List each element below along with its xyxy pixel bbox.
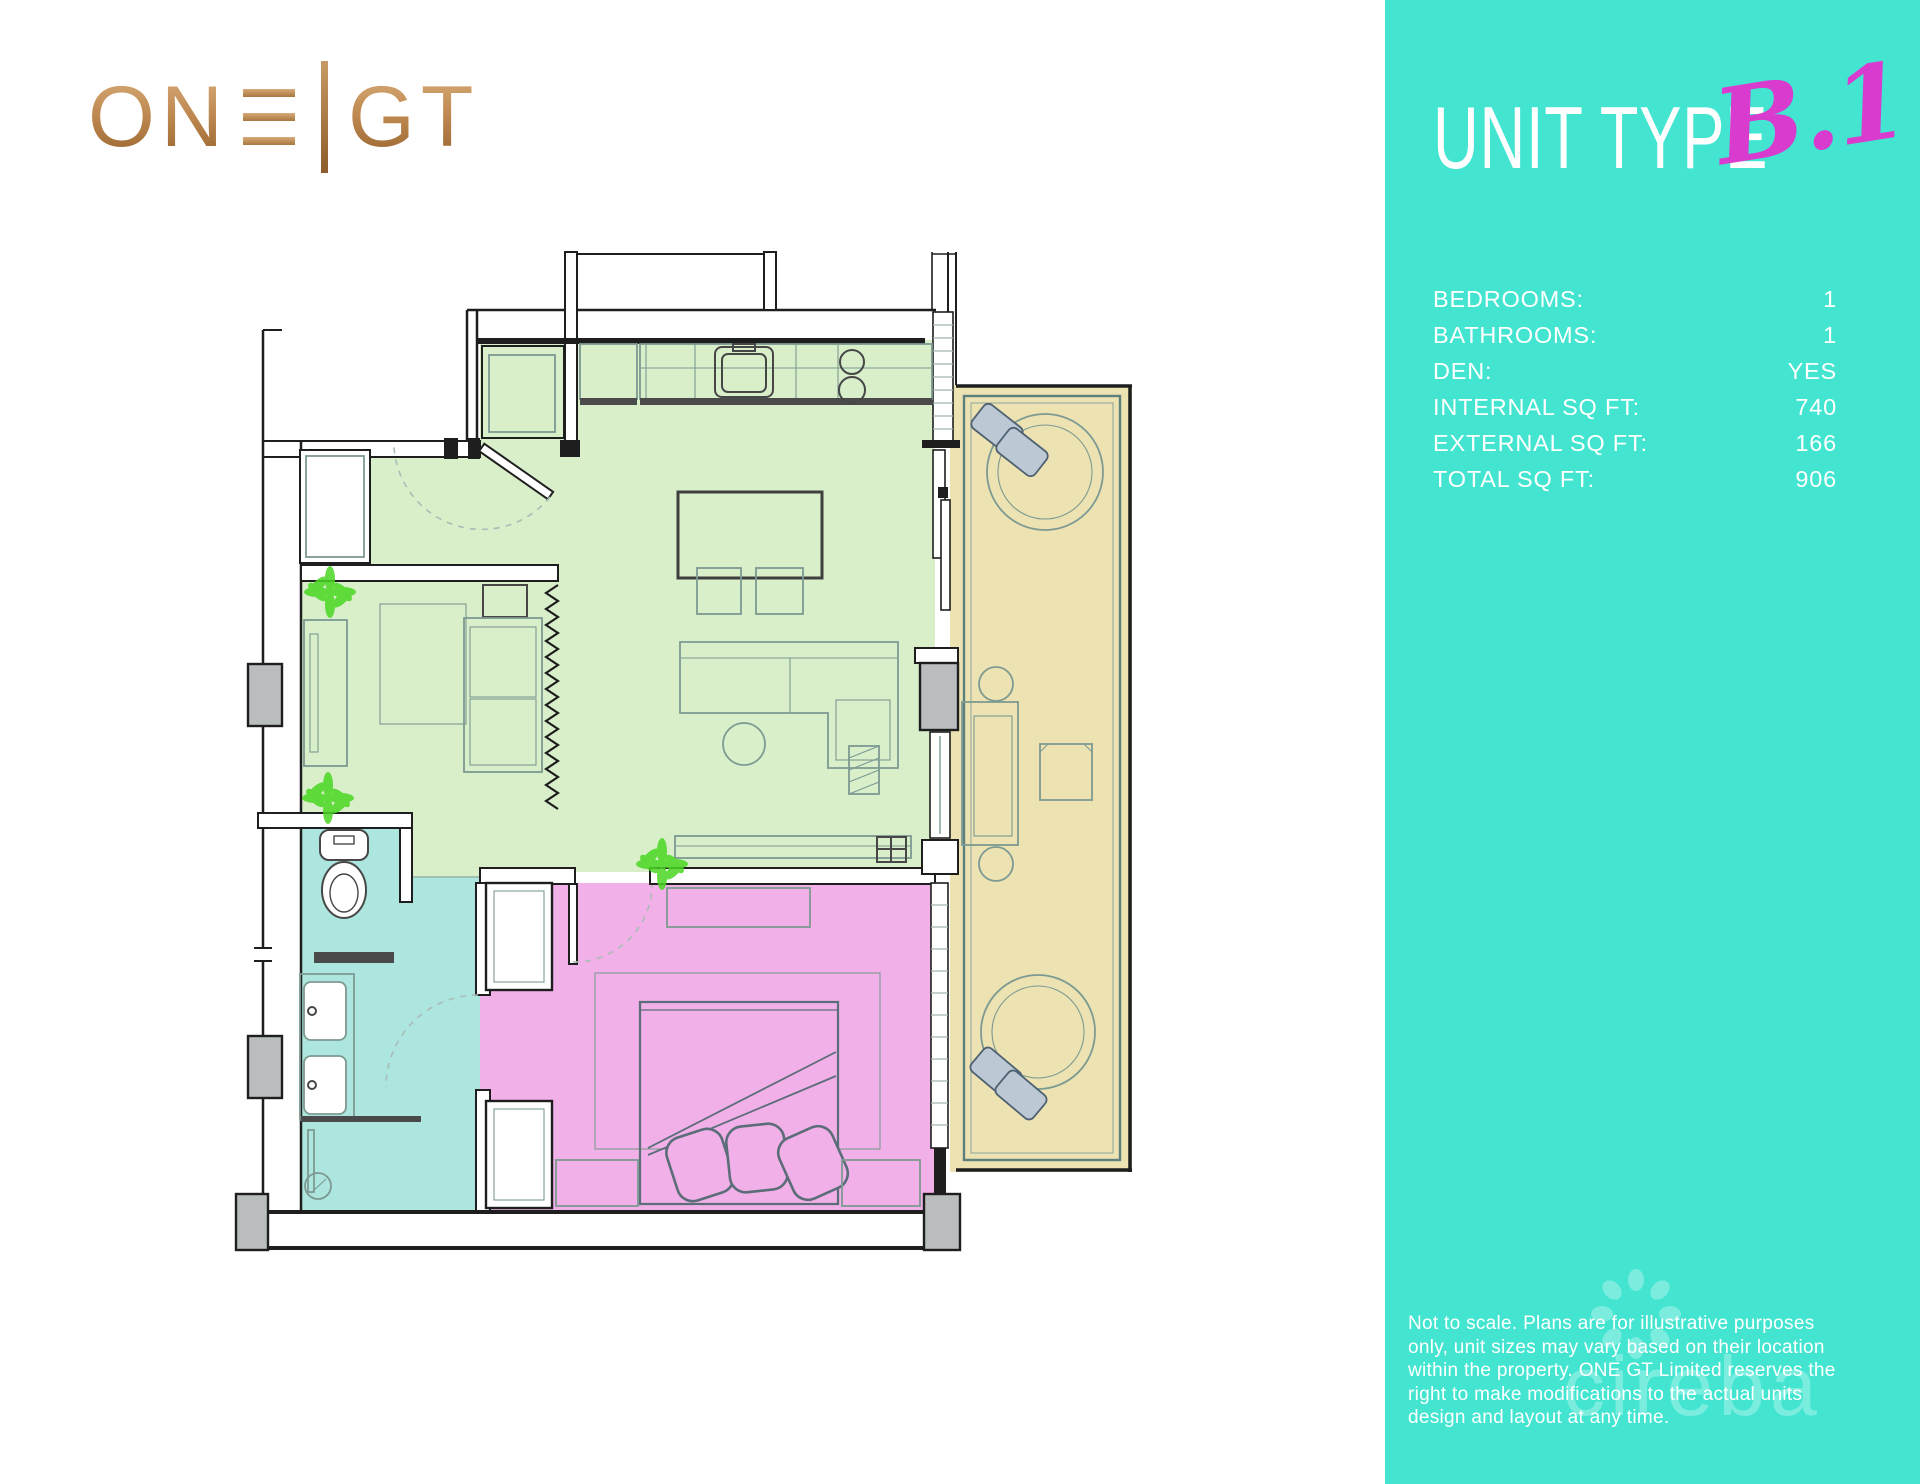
info-panel: UNIT TYPE B.1 BEDROOMS: 1 BATHROOMS: 1 D… xyxy=(1385,0,1920,1484)
floor-plan xyxy=(140,236,1200,1276)
brand-logo: ON GT xyxy=(88,58,479,176)
spec-row-internal: INTERNAL SQ FT: 740 xyxy=(1433,389,1837,425)
spec-label: TOTAL SQ FT: xyxy=(1433,461,1595,497)
spec-row-bathrooms: BATHROOMS: 1 xyxy=(1433,317,1837,353)
disclaimer-line: right to make modifications to the actua… xyxy=(1408,1383,1836,1407)
spec-row-external: EXTERNAL SQ FT: 166 xyxy=(1433,425,1837,461)
spec-label: EXTERNAL SQ FT: xyxy=(1433,425,1648,461)
unit-code: B.1 xyxy=(1708,48,1912,181)
spec-list: BEDROOMS: 1 BATHROOMS: 1 DEN: YES INTERN… xyxy=(1433,281,1837,497)
logo-e-bars-icon xyxy=(243,89,295,145)
room-hall-nook xyxy=(412,820,480,878)
spec-value: 906 xyxy=(1795,461,1837,497)
spec-value: 1 xyxy=(1823,317,1837,353)
spec-row-total: TOTAL SQ FT: 906 xyxy=(1433,461,1837,497)
disclaimer-line: Not to scale. Plans are for illustrative… xyxy=(1408,1312,1836,1336)
spec-row-den: DEN: YES xyxy=(1433,353,1837,389)
disclaimer-line: only, unit sizes may vary based on their… xyxy=(1408,1336,1836,1360)
spec-value: 166 xyxy=(1795,425,1837,461)
disclaimer-line: within the property. ONE GT Limited rese… xyxy=(1408,1359,1836,1383)
spec-label: BATHROOMS: xyxy=(1433,317,1597,353)
flyer-page: ON GT xyxy=(0,0,1920,1484)
spec-label: DEN: xyxy=(1433,353,1492,389)
room-balcony xyxy=(950,385,1132,1172)
disclaimer-line: design and layout at any time. xyxy=(1408,1406,1836,1430)
spec-value: YES xyxy=(1788,353,1837,389)
logo-gt: GT xyxy=(348,74,479,160)
watermark: cireba xyxy=(1385,0,1920,1484)
spec-value: 1 xyxy=(1823,281,1837,317)
spec-row-bedrooms: BEDROOMS: 1 xyxy=(1433,281,1837,317)
spec-value: 740 xyxy=(1795,389,1837,425)
logo-on: ON xyxy=(88,74,229,160)
disclaimer: Not to scale. Plans are for illustrative… xyxy=(1408,1312,1836,1430)
spec-label: BEDROOMS: xyxy=(1433,281,1584,317)
logo-divider xyxy=(321,61,328,173)
spec-label: INTERNAL SQ FT: xyxy=(1433,389,1640,425)
